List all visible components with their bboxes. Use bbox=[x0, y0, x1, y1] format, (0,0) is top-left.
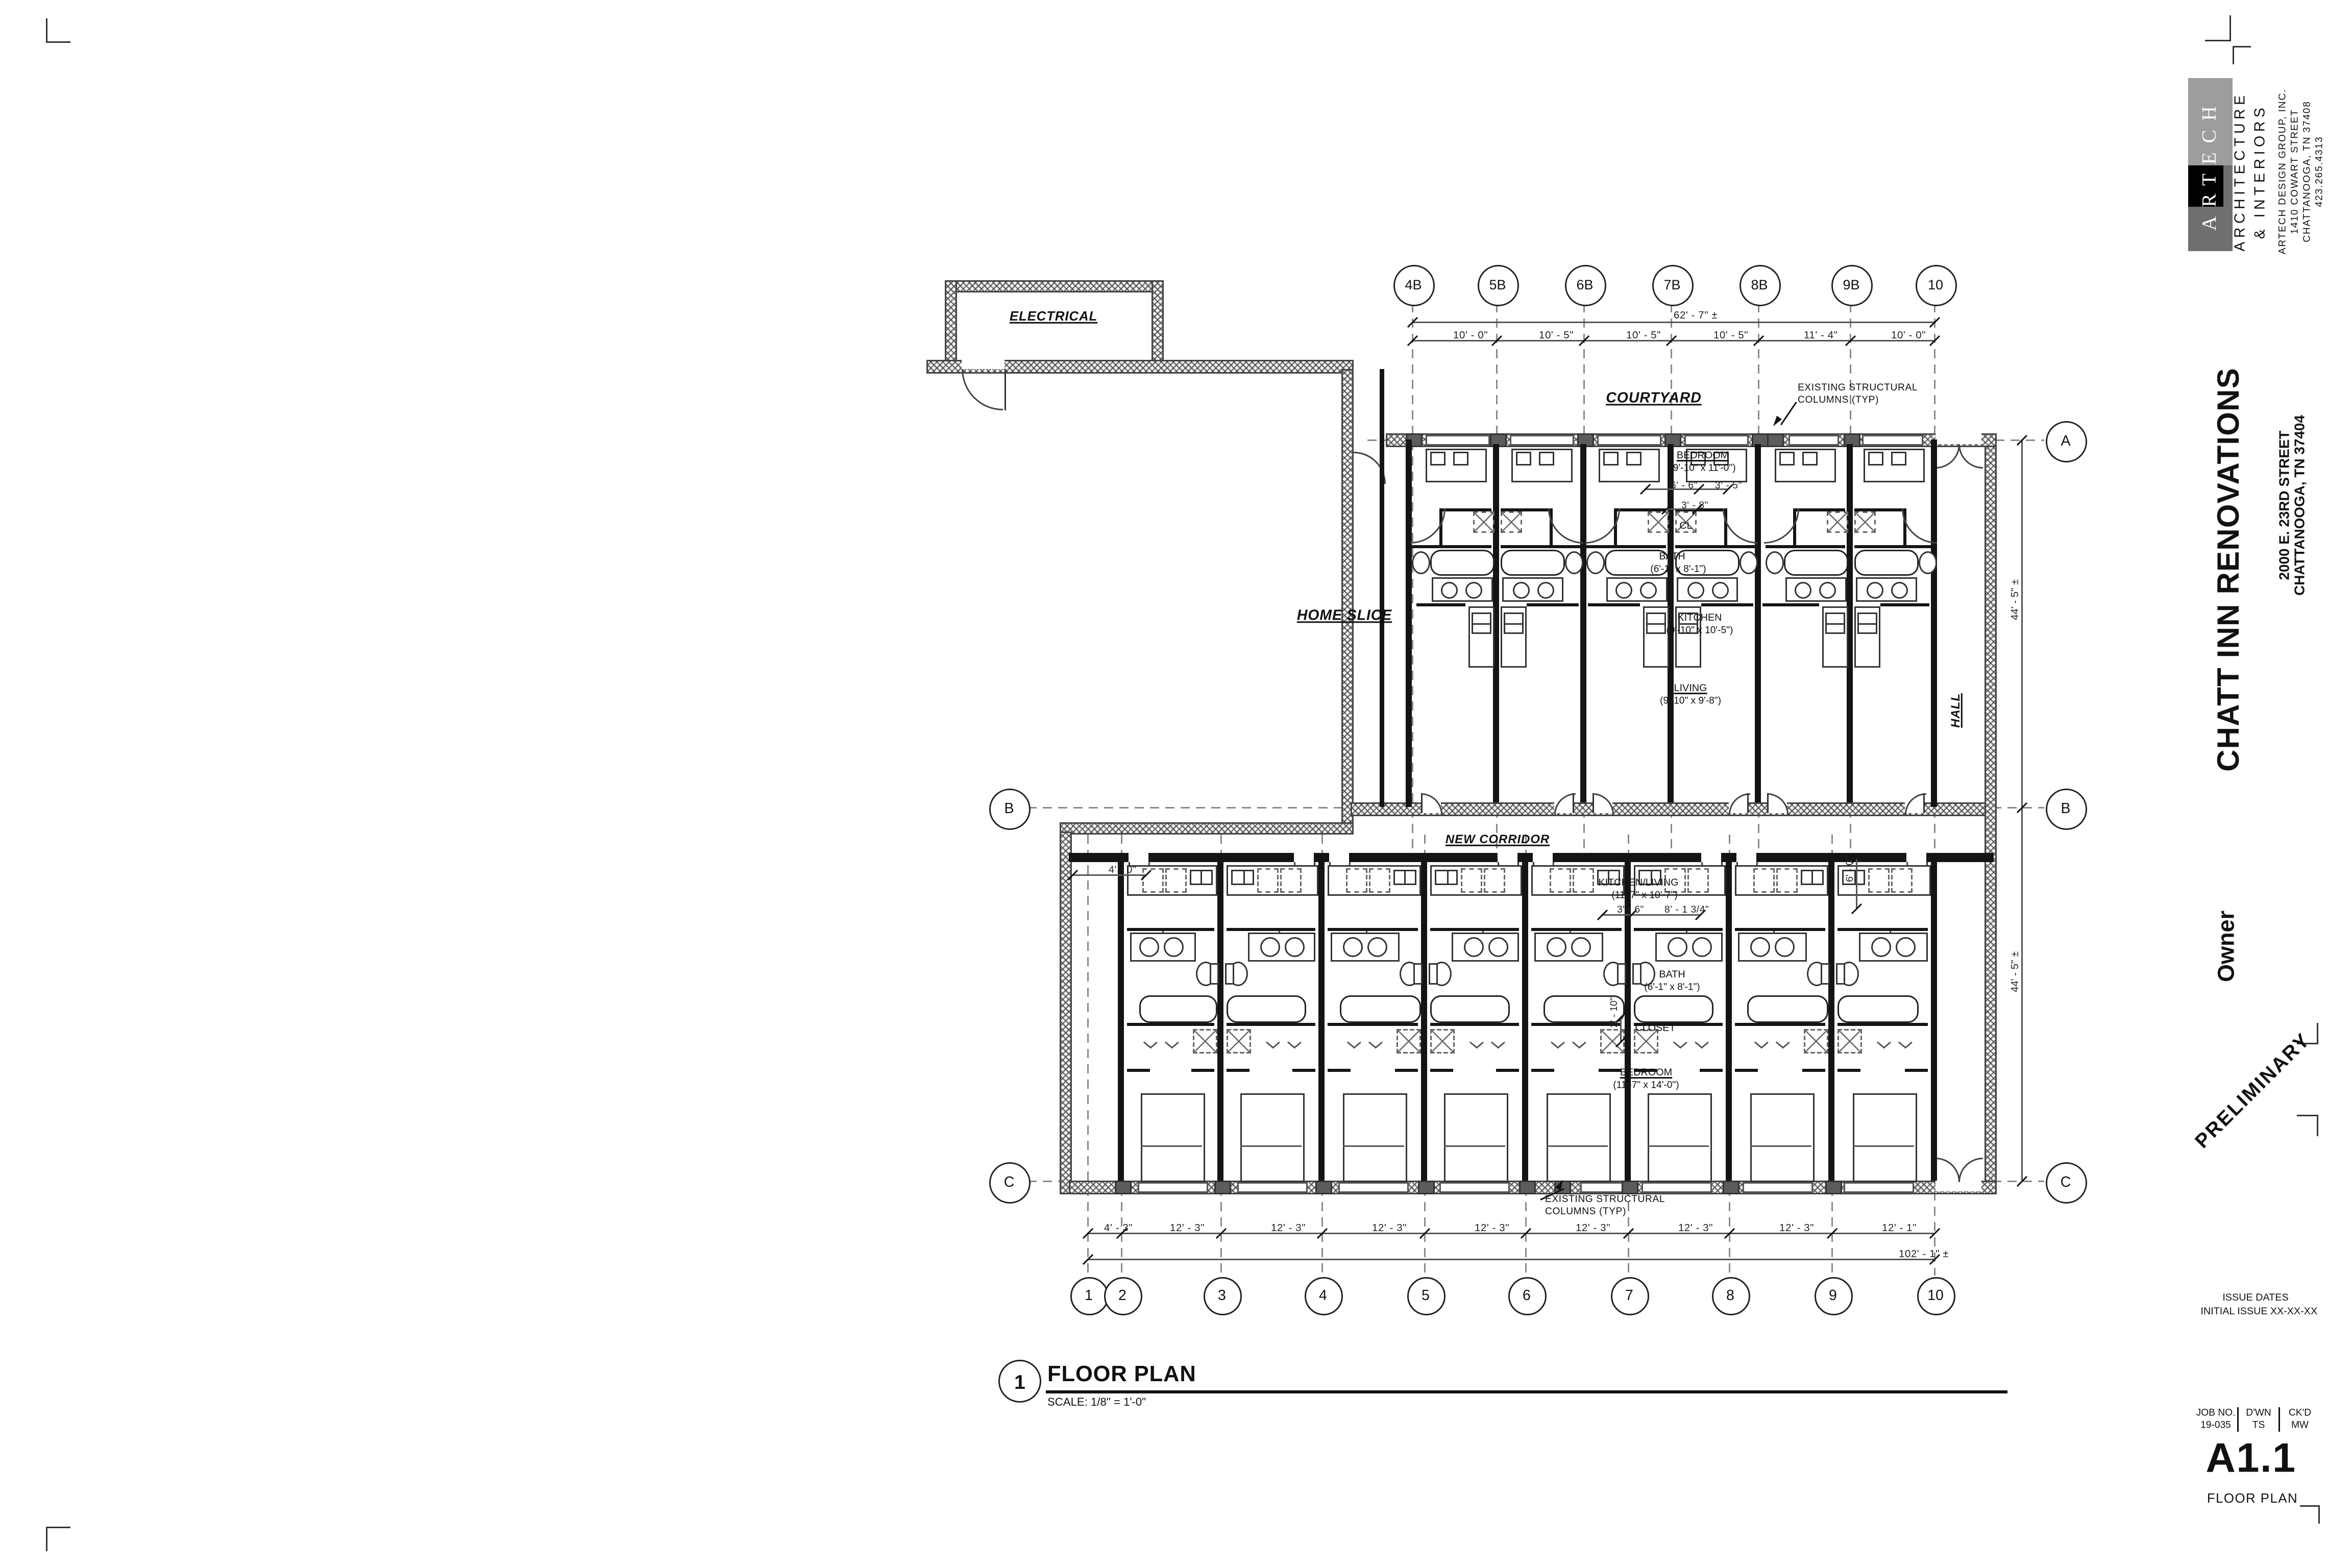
bed-line bbox=[1750, 1145, 1811, 1146]
appliance bbox=[1346, 868, 1367, 893]
vanity bbox=[1452, 933, 1519, 962]
trim-mark bbox=[46, 18, 70, 43]
sink bbox=[1571, 937, 1591, 957]
firm-line-interiors: & INTERIORS bbox=[2253, 104, 2269, 239]
structural-column bbox=[1825, 1181, 1842, 1194]
toilet bbox=[1766, 551, 1784, 574]
sink bbox=[1795, 582, 1811, 599]
unit-wall bbox=[1828, 862, 1834, 1181]
door-gap bbox=[1329, 853, 1349, 862]
room-label-hall: HALL bbox=[1950, 693, 1964, 728]
window bbox=[1641, 1183, 1712, 1193]
hanger bbox=[1354, 1042, 1362, 1049]
closet-wall bbox=[1837, 1023, 1928, 1026]
bathtub bbox=[1139, 995, 1217, 1023]
closet-shelf bbox=[1501, 511, 1522, 533]
door-leaf bbox=[1573, 793, 1574, 813]
grid-bubble: 6 bbox=[1508, 1277, 1546, 1315]
closet-wall bbox=[1735, 1023, 1825, 1026]
bed-line bbox=[1547, 1145, 1608, 1146]
upper-bath-dim: (6'-1" x 8'-1") bbox=[1650, 564, 1706, 575]
grid-bubble: 9 bbox=[1814, 1277, 1852, 1315]
door-arc bbox=[962, 369, 1003, 410]
grid-bubble: 2 bbox=[1104, 1277, 1142, 1315]
grid-bubble: 4B bbox=[1393, 264, 1434, 306]
bath-wall bbox=[1588, 603, 1640, 606]
pillow bbox=[1779, 452, 1795, 465]
unit-wall bbox=[1522, 862, 1528, 1181]
door-gap bbox=[1533, 853, 1553, 862]
upper-bedroom-dim: (9'-10" x 11'-0") bbox=[1670, 463, 1735, 474]
bathtub bbox=[1747, 995, 1828, 1023]
kitchen-sink bbox=[1825, 612, 1845, 625]
sink bbox=[1465, 582, 1482, 599]
appliance bbox=[1776, 868, 1798, 893]
drawing-sheet: 62' - 7" ±10' - 0"10' - 5"10' - 5"10' - … bbox=[0, 0, 2352, 1568]
toilet-tank bbox=[1429, 963, 1438, 985]
grid-bubble: 5B bbox=[1477, 264, 1518, 306]
structural-column bbox=[1621, 1181, 1638, 1194]
toilet bbox=[1586, 551, 1605, 574]
hanger bbox=[1294, 1042, 1302, 1049]
firm-logo-text: ARTECH bbox=[2199, 97, 2221, 231]
door-arc bbox=[1902, 508, 1937, 544]
bath-wall bbox=[1762, 603, 1819, 606]
closet-wall bbox=[1412, 545, 1491, 548]
room-label-electrical: ELECTRICAL bbox=[1010, 310, 1097, 324]
sink bbox=[1164, 937, 1184, 957]
sheet-number: A1.1 bbox=[2206, 1436, 2296, 1482]
kitchen-sink bbox=[1646, 612, 1666, 625]
grid-bubble: 5 bbox=[1407, 1277, 1445, 1315]
closet-wall bbox=[1227, 1023, 1315, 1026]
bathtub bbox=[1854, 550, 1919, 576]
toilet bbox=[1739, 551, 1758, 574]
door-gap bbox=[1294, 853, 1314, 862]
grid-bubble: 9B bbox=[1831, 264, 1872, 306]
door-leaf bbox=[1747, 793, 1749, 813]
appliance bbox=[1369, 868, 1390, 893]
drawn-by: TS bbox=[2252, 1420, 2265, 1431]
upper-kitchen-dim: (9'-10" x 10'-5") bbox=[1667, 625, 1733, 636]
door-gap bbox=[1935, 1181, 1981, 1191]
closet-wall bbox=[1430, 1023, 1519, 1026]
plan-geometry: 62' - 7" ±10' - 0"10' - 5"10' - 5"10' - … bbox=[0, 0, 2352, 1568]
sink bbox=[1891, 582, 1908, 599]
bed bbox=[1343, 1093, 1407, 1182]
closet-wall bbox=[1191, 1069, 1214, 1072]
closet-wall bbox=[1496, 1069, 1519, 1072]
window bbox=[1597, 435, 1661, 446]
sink bbox=[1640, 582, 1657, 599]
checked-by: MW bbox=[2291, 1420, 2309, 1431]
grid-bubble: 10 bbox=[1917, 1277, 1955, 1315]
sink bbox=[1260, 937, 1280, 957]
trim-mark bbox=[2205, 15, 2231, 41]
upper-bath-label: BATH bbox=[1659, 552, 1685, 563]
appliance bbox=[1687, 868, 1709, 893]
window bbox=[1439, 1183, 1510, 1193]
closet-shelf bbox=[1473, 511, 1494, 533]
vanity bbox=[1534, 933, 1603, 962]
closet-shelf bbox=[1430, 1029, 1455, 1053]
unit-wall bbox=[1931, 862, 1937, 1181]
closet-shelf bbox=[1854, 511, 1876, 533]
bed bbox=[1141, 1093, 1205, 1182]
leader-arrow bbox=[1771, 415, 1782, 428]
grid-bubble: A bbox=[2045, 421, 2087, 462]
kitchen-sink bbox=[1811, 870, 1824, 885]
kitchen-sink bbox=[1200, 870, 1213, 885]
trim-mark bbox=[2300, 1505, 2320, 1524]
toilet-tank bbox=[1821, 963, 1830, 985]
door-gap bbox=[1129, 853, 1148, 862]
sink bbox=[1513, 582, 1530, 599]
trim-mark bbox=[2233, 46, 2251, 64]
grid-bubble: B bbox=[2045, 788, 2087, 829]
closet-wall bbox=[1837, 1069, 1860, 1072]
sink bbox=[1464, 937, 1484, 957]
window bbox=[1844, 1183, 1914, 1193]
trim-mark bbox=[2297, 1115, 2318, 1136]
sink bbox=[1139, 937, 1159, 957]
closet-wall bbox=[1328, 1069, 1351, 1072]
project-address1: 2000 E. 23RD STREET bbox=[2277, 430, 2293, 580]
structural-column bbox=[1417, 1181, 1434, 1194]
vanity bbox=[1248, 933, 1315, 962]
closet-wall bbox=[1328, 1023, 1418, 1026]
firm-line-street: 1410 COWART STREET bbox=[2290, 109, 2300, 234]
room-label-home-slice: HOME SLICE bbox=[1297, 609, 1392, 625]
closet-wall bbox=[1766, 545, 1845, 548]
window bbox=[1237, 1183, 1308, 1193]
sheet-title: FLOOR PLAN bbox=[2207, 1492, 2298, 1506]
pillow bbox=[1626, 452, 1641, 465]
structural-column bbox=[1518, 1181, 1535, 1194]
existing-wall bbox=[1351, 802, 1997, 816]
job-no-label: JOB NO. bbox=[2196, 1408, 2236, 1418]
toilet-tank bbox=[1225, 963, 1234, 985]
window bbox=[1862, 435, 1923, 446]
closet-wall bbox=[1802, 1069, 1825, 1072]
closet-wall bbox=[1700, 1069, 1723, 1072]
closet-wall bbox=[1854, 545, 1934, 548]
appliance bbox=[1484, 868, 1505, 893]
bed-line bbox=[1240, 1145, 1302, 1146]
bed-line bbox=[1141, 1145, 1202, 1146]
existing-wall bbox=[1060, 831, 1072, 1194]
bed-line bbox=[1648, 1145, 1709, 1146]
grid-bubble: B bbox=[989, 788, 1030, 829]
unit-wall bbox=[1406, 439, 1411, 807]
pillow bbox=[1430, 452, 1445, 465]
door-gap bbox=[1906, 853, 1926, 862]
pillow bbox=[1891, 452, 1906, 465]
closet-shelf bbox=[1227, 1029, 1251, 1053]
dim-line bbox=[1620, 1017, 1621, 1041]
structural-column bbox=[1722, 1181, 1739, 1194]
unit-wall bbox=[1421, 862, 1427, 1181]
hanger bbox=[1905, 1042, 1913, 1049]
unit-wall bbox=[1726, 862, 1732, 1181]
pillow bbox=[1802, 452, 1818, 465]
kitchen-sink bbox=[1435, 870, 1448, 885]
dim-line bbox=[1412, 321, 1934, 322]
lower-kl-label: KITCHEN/LIVING bbox=[1598, 878, 1678, 889]
toilet-tank bbox=[1836, 963, 1845, 985]
window bbox=[1743, 1183, 1813, 1193]
drawing-title-name: FLOOR PLAN bbox=[1047, 1363, 1196, 1387]
room-label-courtyard: COURTYARD bbox=[1606, 391, 1702, 407]
sink bbox=[1547, 937, 1566, 957]
structural-column bbox=[1767, 433, 1783, 447]
unit-wall bbox=[1755, 444, 1761, 802]
hanger bbox=[1680, 1042, 1688, 1049]
grid-bubble: 7B bbox=[1652, 264, 1693, 306]
existing-wall bbox=[945, 280, 1164, 292]
unit-wall bbox=[1931, 439, 1937, 807]
hanger bbox=[1701, 1042, 1709, 1049]
closet-wall bbox=[1531, 1069, 1554, 1072]
closet-shelf bbox=[1396, 1029, 1421, 1053]
job-divider bbox=[2237, 1407, 2239, 1432]
drawing-title-underline bbox=[1046, 1390, 2007, 1393]
closet-wall bbox=[1501, 545, 1580, 548]
grid-bubble: 1 bbox=[1070, 1277, 1108, 1315]
bathtub bbox=[1501, 550, 1565, 576]
grid-bubble: 4 bbox=[1304, 1277, 1342, 1315]
project-title: CHATT INN RENOVATIONS bbox=[2213, 367, 2246, 772]
kitchen-sink bbox=[1504, 612, 1524, 625]
hanger bbox=[1476, 1042, 1484, 1049]
hanger bbox=[1498, 1042, 1506, 1049]
initial-issue-date: XX-XX-XX bbox=[2270, 1307, 2317, 1318]
closet-wall bbox=[1127, 1069, 1150, 1072]
bed bbox=[1648, 1093, 1712, 1182]
grid-line bbox=[1412, 303, 1413, 853]
pillow bbox=[1539, 452, 1554, 465]
window bbox=[1426, 435, 1490, 446]
bath-wall bbox=[1880, 603, 1929, 606]
vanity bbox=[1856, 577, 1917, 602]
hanger bbox=[1150, 1042, 1158, 1049]
appliance bbox=[1257, 868, 1279, 893]
hanger bbox=[1171, 1042, 1180, 1049]
sink bbox=[1367, 937, 1387, 957]
door-leaf bbox=[1421, 793, 1423, 813]
hanger bbox=[1761, 1042, 1769, 1049]
hanger bbox=[1579, 1042, 1587, 1049]
closet-shelf bbox=[1193, 1029, 1217, 1053]
sink bbox=[1285, 937, 1305, 957]
initial-issue-label: INITIAL ISSUE bbox=[2200, 1307, 2267, 1318]
closet-wall bbox=[1586, 545, 1666, 548]
dim-line bbox=[2021, 439, 2022, 1181]
upper-living-dim: (9'-10" x 9'-8") bbox=[1660, 696, 1721, 706]
sink bbox=[1668, 937, 1687, 957]
door-arc bbox=[1421, 793, 1442, 815]
door-leaf bbox=[1592, 793, 1594, 813]
bed bbox=[1853, 1093, 1917, 1182]
sink bbox=[1488, 937, 1508, 957]
lower-kl-dim: (11'-7" x 10'-7") bbox=[1611, 890, 1677, 901]
window bbox=[1138, 1183, 1208, 1193]
dim-line bbox=[1087, 1259, 1934, 1260]
closet-wall bbox=[1599, 1069, 1622, 1072]
bed-line bbox=[1343, 1145, 1404, 1146]
sink bbox=[1687, 582, 1704, 599]
bed bbox=[1547, 1093, 1611, 1182]
dim-line bbox=[1856, 857, 1857, 908]
closet-shelf bbox=[1827, 511, 1848, 533]
bathtub bbox=[1430, 995, 1510, 1023]
bathtub bbox=[1784, 550, 1848, 576]
lower-closet-label: CLOSET bbox=[1635, 1023, 1675, 1035]
appliance bbox=[1550, 868, 1571, 893]
upper-living-label: LIVING bbox=[1674, 683, 1707, 695]
tenant-wall bbox=[1380, 369, 1384, 807]
job-divider bbox=[2278, 1407, 2280, 1432]
kitchen-sink bbox=[1404, 870, 1417, 885]
grid-bubble: 6B bbox=[1564, 264, 1606, 306]
checked-label: CK'D bbox=[2289, 1408, 2311, 1418]
unit-wall bbox=[1118, 862, 1124, 1181]
pillow bbox=[1868, 452, 1883, 465]
lower-bath-label: BATH bbox=[1659, 970, 1685, 981]
closet-wall bbox=[1675, 545, 1755, 548]
hanger bbox=[1782, 1042, 1791, 1049]
leader-line bbox=[1780, 402, 1797, 425]
bathtub bbox=[1837, 995, 1919, 1023]
door-arc bbox=[1958, 1158, 1983, 1182]
closet-wall bbox=[1227, 1069, 1249, 1072]
sink bbox=[1692, 937, 1712, 957]
job-no: 19-035 bbox=[2200, 1420, 2231, 1431]
sink bbox=[1750, 937, 1770, 957]
bath-wall bbox=[1416, 603, 1465, 606]
existing-wall bbox=[945, 280, 957, 372]
room-label-new-corridor: NEW CORRIDOR bbox=[1445, 834, 1550, 847]
bed-line bbox=[1853, 1145, 1914, 1146]
door-arc bbox=[1548, 508, 1583, 544]
existing-wall bbox=[1060, 822, 1354, 835]
door-gap bbox=[1935, 433, 1981, 444]
pillow bbox=[1516, 452, 1531, 465]
closet-wall bbox=[1127, 1023, 1214, 1026]
door-arc bbox=[1935, 444, 1960, 469]
pillow bbox=[1453, 452, 1468, 465]
drawing-title-scale: SCALE: 1/8" = 1'-0" bbox=[1047, 1395, 1146, 1409]
closet-shelf bbox=[1837, 1029, 1862, 1053]
trim-mark bbox=[46, 1527, 70, 1551]
kitchen-sink bbox=[1857, 612, 1877, 625]
bathtub bbox=[1227, 995, 1306, 1023]
closet-wall bbox=[1395, 1069, 1418, 1072]
closet-wall bbox=[1531, 1023, 1622, 1026]
firm-line-group: ARTECH DESIGN GROUP, INC. bbox=[2277, 89, 2288, 254]
toilet bbox=[1565, 551, 1583, 574]
sink bbox=[1896, 937, 1916, 957]
bed bbox=[1240, 1093, 1305, 1182]
firm-line-architecture: ARCHITECTURE bbox=[2234, 91, 2249, 251]
door-arc bbox=[1958, 444, 1983, 469]
appliance bbox=[1753, 868, 1775, 893]
door-leaf bbox=[1004, 369, 1006, 410]
toilet-tank bbox=[1210, 963, 1219, 985]
door-arc bbox=[1935, 1158, 1960, 1182]
grid-line bbox=[1087, 835, 1089, 1276]
closet-shelf bbox=[1648, 511, 1669, 533]
grid-bubble: 10 bbox=[1915, 264, 1956, 306]
structural-column bbox=[1214, 1181, 1231, 1194]
sink bbox=[1775, 937, 1795, 957]
vanity bbox=[1331, 933, 1400, 962]
appliance bbox=[1573, 868, 1594, 893]
kitchen-sink bbox=[1231, 870, 1244, 885]
hanger bbox=[1272, 1042, 1281, 1049]
toilet-tank bbox=[1413, 963, 1423, 985]
sink bbox=[1871, 937, 1891, 957]
bathtub bbox=[1340, 995, 1421, 1023]
vanity bbox=[1677, 577, 1738, 602]
existing-wall bbox=[1151, 280, 1164, 372]
toilet bbox=[1412, 551, 1430, 574]
window bbox=[1684, 435, 1749, 446]
appliance bbox=[1142, 868, 1164, 893]
sink bbox=[1712, 582, 1729, 599]
appliance bbox=[1461, 868, 1482, 893]
appliance bbox=[1868, 868, 1890, 893]
appliance bbox=[1891, 868, 1913, 893]
door-gap bbox=[1736, 853, 1756, 862]
door-arc bbox=[1592, 793, 1614, 815]
note-columns-bottom-line2: COLUMNS (TYP) bbox=[1545, 1207, 1626, 1217]
upper-bedroom-label: BEDROOM bbox=[1677, 451, 1729, 462]
lower-bedroom-dim: (11'-7" x 14'-0") bbox=[1613, 1080, 1679, 1091]
closet-wall bbox=[1292, 1069, 1315, 1072]
grid-bubble: C bbox=[989, 1162, 1030, 1203]
vanity bbox=[1655, 933, 1723, 962]
drawing-title-bubble: 1 bbox=[998, 1360, 1041, 1403]
sink bbox=[1819, 582, 1836, 599]
closet-wall bbox=[1905, 1069, 1928, 1072]
bath-wall bbox=[1527, 603, 1579, 606]
project-address2: CHATTANOOGA, TN 37404 bbox=[2292, 415, 2308, 596]
appliance bbox=[1165, 868, 1187, 893]
bathtub bbox=[1634, 995, 1713, 1023]
door-arc bbox=[1723, 508, 1758, 544]
door-gap bbox=[962, 360, 1004, 370]
sink bbox=[1537, 582, 1554, 599]
door-gap bbox=[1498, 853, 1517, 862]
toilet-tank bbox=[1632, 963, 1641, 985]
lower-bedroom-label: BEDROOM bbox=[1620, 1068, 1672, 1079]
hanger bbox=[1883, 1042, 1892, 1049]
firm-line-phone: 423.265.4313 bbox=[2314, 136, 2325, 207]
grid-bubble: 7 bbox=[1610, 1277, 1649, 1315]
sink bbox=[1343, 937, 1363, 957]
toilet-tank bbox=[1617, 963, 1626, 985]
note-columns-top-line1: EXISTING STRUCTURAL bbox=[1798, 383, 1918, 394]
unit-wall bbox=[1318, 862, 1325, 1181]
drawn-label: D'WN bbox=[2246, 1408, 2271, 1418]
bathtub bbox=[1430, 550, 1494, 576]
structural-column bbox=[1114, 1181, 1131, 1194]
note-columns-bottom-line1: EXISTING STRUCTURAL bbox=[1545, 1194, 1665, 1205]
sink bbox=[1615, 582, 1632, 599]
window bbox=[1788, 435, 1839, 446]
door-gap bbox=[1701, 853, 1721, 862]
